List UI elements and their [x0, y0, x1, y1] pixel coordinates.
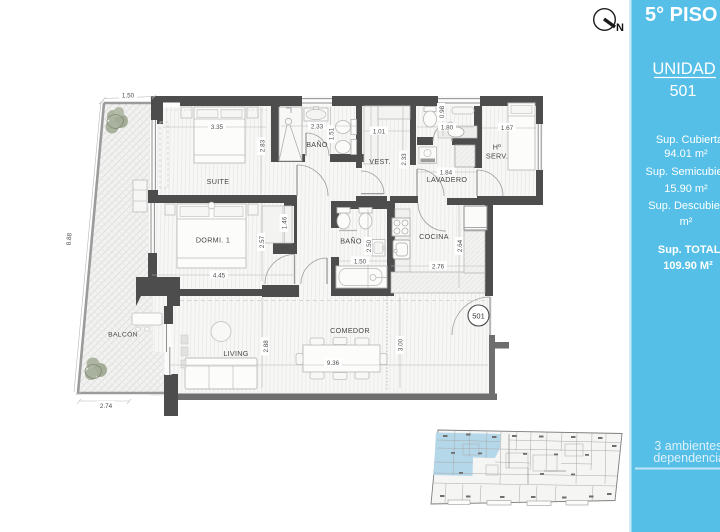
- svg-text:94.01 m²: 94.01 m²: [664, 148, 708, 160]
- svg-text:2.76: 2.76: [432, 264, 445, 271]
- svg-text:0.98: 0.98: [439, 105, 446, 118]
- svg-text:Hº: Hº: [493, 143, 501, 152]
- svg-text:Sup. Semicubierta:: Sup. Semicubierta:: [646, 166, 720, 178]
- svg-text:2.33: 2.33: [401, 153, 408, 166]
- svg-text:UNIDAD: UNIDAD: [652, 60, 715, 78]
- svg-text:COCINA: COCINA: [419, 232, 449, 241]
- svg-text:DORMI. 1: DORMI. 1: [196, 236, 230, 245]
- svg-text:15.90 m²: 15.90 m²: [664, 183, 708, 195]
- svg-text:BAÑO: BAÑO: [340, 237, 362, 246]
- svg-text:1.80: 1.80: [441, 125, 454, 132]
- svg-text:m²: m²: [680, 216, 693, 228]
- svg-text:Sup. Descubierta:: Sup. Descubierta:: [648, 200, 720, 212]
- svg-text:1.46: 1.46: [282, 216, 289, 229]
- svg-text:2.83: 2.83: [260, 139, 267, 152]
- svg-text:BALCÓN: BALCÓN: [108, 330, 138, 339]
- svg-text:5° PISO: 5° PISO: [645, 4, 717, 26]
- svg-text:2.88: 2.88: [263, 340, 270, 353]
- svg-text:4.45: 4.45: [213, 273, 226, 280]
- svg-text:dependencia y: dependencia y: [653, 451, 720, 465]
- svg-text:109.90 M²: 109.90 M²: [663, 260, 713, 272]
- svg-text:LAVADERO: LAVADERO: [427, 175, 468, 184]
- svg-text:Sup. TOTAL:: Sup. TOTAL:: [658, 244, 720, 256]
- svg-text:1.67: 1.67: [501, 125, 514, 132]
- svg-text:2.74: 2.74: [100, 403, 113, 410]
- svg-text:2.57: 2.57: [259, 235, 266, 248]
- svg-text:501: 501: [670, 83, 697, 100]
- svg-text:8.88: 8.88: [65, 232, 73, 245]
- svg-text:1.01: 1.01: [373, 129, 386, 136]
- svg-text:1.51: 1.51: [329, 127, 336, 140]
- svg-text:2.64: 2.64: [457, 239, 464, 252]
- svg-text:501: 501: [472, 311, 485, 320]
- svg-text:Sup. Cubierta:: Sup. Cubierta:: [656, 134, 720, 146]
- svg-text:SUITE: SUITE: [207, 177, 230, 186]
- svg-text:VEST.: VEST.: [369, 157, 390, 166]
- svg-text:COMEDOR: COMEDOR: [330, 326, 370, 335]
- svg-text:9.36: 9.36: [327, 360, 340, 367]
- svg-text:3.00: 3.00: [398, 338, 405, 351]
- svg-text:3.35: 3.35: [211, 124, 224, 131]
- svg-text:2.50: 2.50: [366, 239, 373, 252]
- svg-text:2.33: 2.33: [311, 124, 324, 131]
- svg-text:SERV.: SERV.: [486, 152, 508, 161]
- svg-text:BAÑO: BAÑO: [306, 140, 328, 149]
- svg-text:LIVING: LIVING: [223, 349, 248, 358]
- svg-text:1.50: 1.50: [122, 93, 135, 100]
- svg-text:1.50: 1.50: [354, 259, 367, 266]
- svg-text:N: N: [616, 22, 624, 34]
